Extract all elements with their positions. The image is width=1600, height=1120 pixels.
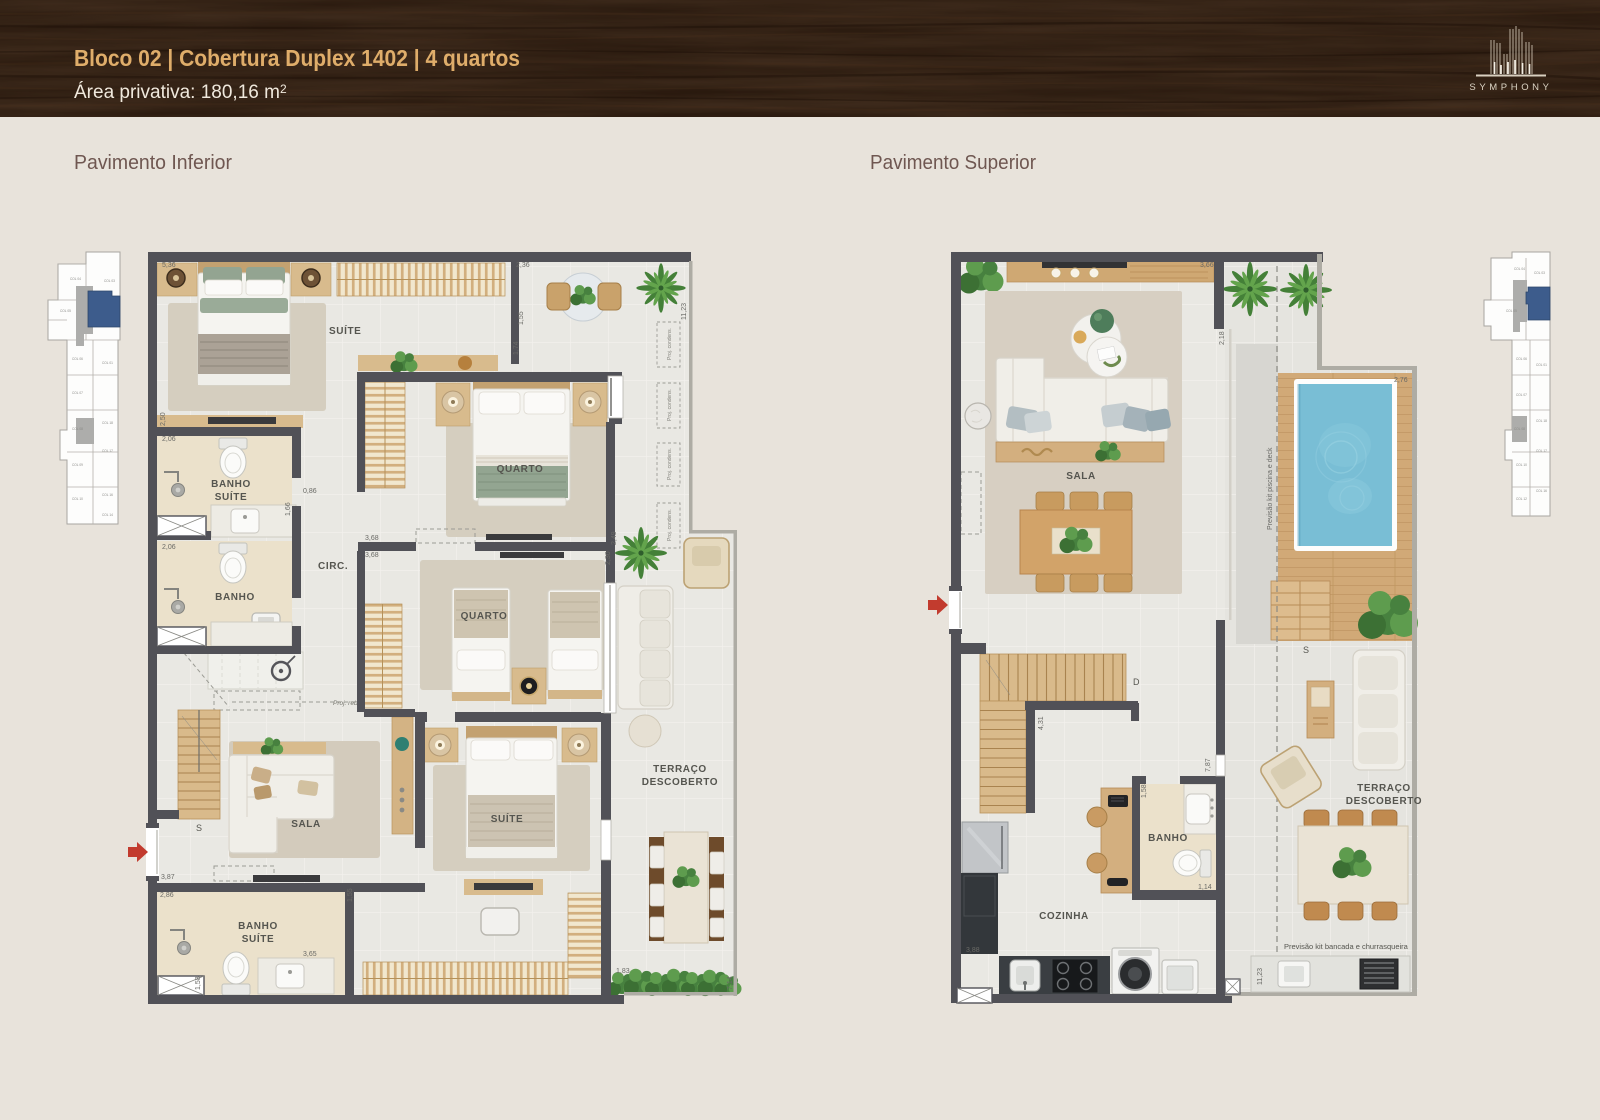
svg-text:11,23: 11,23: [1257, 968, 1264, 985]
svg-text:Bloco 02 | Cobertura Duplex 14: Bloco 02 | Cobertura Duplex 1402 | 4 qua…: [74, 45, 520, 71]
svg-text:1,58: 1,58: [1141, 784, 1148, 798]
svg-text:2,49: 2,49: [611, 531, 618, 545]
svg-text:2,76: 2,76: [1394, 377, 1408, 384]
svg-text:COL 17: COL 17: [102, 449, 113, 453]
svg-text:1,55: 1,55: [518, 311, 525, 325]
svg-text:BANHO: BANHO: [211, 479, 251, 490]
svg-text:COL 18: COL 18: [102, 421, 113, 425]
svg-text:SUÍTE: SUÍTE: [329, 324, 361, 337]
svg-text:COL 18: COL 18: [1536, 419, 1547, 423]
svg-text:Pavimento Superior: Pavimento Superior: [870, 152, 1036, 174]
svg-text:11,23: 11,23: [681, 303, 688, 320]
svg-text:SUÍTE: SUÍTE: [215, 490, 247, 503]
svg-text:BANHO: BANHO: [215, 592, 255, 603]
svg-text:Proj. condens.: Proj. condens.: [667, 509, 673, 541]
svg-text:4,31: 4,31: [1038, 716, 1045, 730]
svg-text:COL 05: COL 05: [60, 309, 71, 313]
svg-text:COL 16: COL 16: [1536, 489, 1547, 493]
svg-text:2,86: 2,86: [160, 892, 174, 899]
svg-text:3,88: 3,88: [966, 947, 980, 954]
svg-text:COL 01: COL 01: [1536, 363, 1547, 367]
svg-text:1,66: 1,66: [285, 502, 292, 516]
svg-text:BANHO: BANHO: [1148, 833, 1188, 844]
svg-text:Previsão kit piscina e deck: Previsão kit piscina e deck: [1267, 447, 1274, 530]
svg-text:COL 16: COL 16: [102, 493, 113, 497]
svg-text:Proj. condens.: Proj. condens.: [667, 389, 673, 421]
svg-text:COL 10: COL 10: [1516, 463, 1527, 467]
svg-text:Proj. condens.: Proj. condens.: [667, 448, 673, 480]
svg-text:COL 05: COL 05: [1506, 309, 1517, 313]
svg-text:Previsão kit bancada e churras: Previsão kit bancada e churrasqueira: [1284, 942, 1409, 951]
svg-text:3,65: 3,65: [303, 951, 317, 958]
svg-text:COL 04: COL 04: [1514, 267, 1525, 271]
svg-text:COL 08: COL 08: [1514, 427, 1525, 431]
svg-text:COL 01: COL 01: [102, 361, 113, 365]
svg-text:3,66: 3,66: [1200, 262, 1214, 269]
svg-text:3,68: 3,68: [365, 535, 379, 542]
svg-text:S: S: [196, 823, 202, 833]
svg-text:CIRC.: CIRC.: [318, 561, 348, 572]
svg-text:1,83: 1,83: [616, 968, 630, 975]
svg-text:SALA: SALA: [1066, 471, 1096, 482]
svg-text:COL 06: COL 06: [72, 357, 83, 361]
svg-text:COL 04: COL 04: [70, 277, 81, 281]
svg-text:2,06: 2,06: [162, 436, 176, 443]
svg-text:COL 17: COL 17: [1536, 449, 1547, 453]
svg-text:DESCOBERTO: DESCOBERTO: [642, 777, 718, 788]
svg-text:2,30: 2,30: [605, 551, 612, 565]
svg-text:Pavimento Inferior: Pavimento Inferior: [74, 152, 232, 174]
svg-text:1,14: 1,14: [1198, 884, 1212, 891]
svg-text:5,36: 5,36: [162, 262, 176, 269]
svg-text:COL 10: COL 10: [72, 497, 83, 501]
svg-text:7,14: 7,14: [727, 976, 734, 990]
svg-text:COL 08: COL 08: [72, 427, 83, 431]
svg-text:SYMPHONY: SYMPHONY: [1469, 82, 1552, 93]
svg-text:SUÍTE: SUÍTE: [491, 812, 523, 825]
svg-text:DESCOBERTO: DESCOBERTO: [1346, 796, 1422, 807]
svg-text:BANHO: BANHO: [238, 921, 278, 932]
svg-text:Proj. condens.: Proj. condens.: [667, 328, 673, 360]
svg-text:COL 14: COL 14: [102, 513, 113, 517]
svg-text:2,36: 2,36: [516, 262, 530, 269]
svg-text:1,74: 1,74: [513, 341, 520, 355]
svg-text:1,55: 1,55: [347, 888, 354, 902]
svg-text:2,50: 2,50: [160, 412, 167, 426]
svg-text:COL 03: COL 03: [104, 279, 115, 283]
svg-text:QUARTO: QUARTO: [497, 464, 544, 475]
svg-text:7,87: 7,87: [1205, 758, 1212, 772]
svg-text:SALA: SALA: [291, 819, 321, 830]
svg-text:0,86: 0,86: [303, 488, 317, 495]
svg-text:TERRAÇO: TERRAÇO: [1357, 783, 1411, 794]
svg-text:COL 03: COL 03: [1534, 271, 1545, 275]
svg-text:QUARTO: QUARTO: [461, 611, 508, 622]
svg-text:COL 07: COL 07: [72, 391, 83, 395]
svg-text:2,06: 2,06: [162, 544, 176, 551]
svg-text:3,87: 3,87: [161, 874, 175, 881]
svg-text:COL 09: COL 09: [72, 463, 83, 467]
svg-text:2,18: 2,18: [1219, 331, 1226, 345]
svg-text:COL 07: COL 07: [1516, 393, 1527, 397]
svg-text:SUÍTE: SUÍTE: [242, 932, 274, 945]
svg-text:3,68: 3,68: [365, 552, 379, 559]
svg-text:COL 06: COL 06: [1516, 357, 1527, 361]
svg-text:Área privativa: 180,16 m2: Área privativa: 180,16 m2: [74, 82, 287, 103]
svg-text:TERRAÇO: TERRAÇO: [653, 764, 707, 775]
svg-text:COZINHA: COZINHA: [1039, 911, 1089, 922]
svg-text:1,58: 1,58: [195, 976, 202, 990]
svg-text:S: S: [1303, 645, 1309, 655]
svg-text:COL 12: COL 12: [1516, 497, 1527, 501]
svg-text:D: D: [1133, 677, 1140, 687]
